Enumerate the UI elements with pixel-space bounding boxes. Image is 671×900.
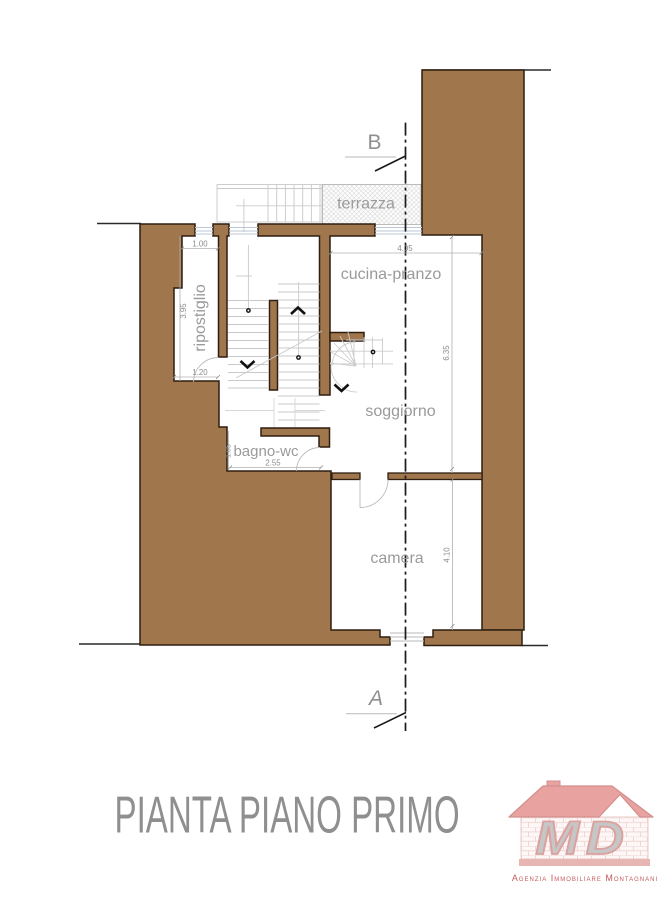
svg-text:MD: MD [535,812,630,865]
svg-text:B: B [367,131,381,154]
svg-text:6.35: 6.35 [442,345,451,361]
svg-text:Agenzia Immobiliare Montagnani: Agenzia Immobiliare Montagnani [512,873,658,883]
svg-text:1.00: 1.00 [192,240,208,249]
svg-text:1.20: 1.20 [192,368,208,377]
svg-text:ripostiglio: ripostiglio [192,284,209,352]
svg-text:cucina-pranzo: cucina-pranzo [341,266,442,283]
svg-text:2.55: 2.55 [265,459,281,468]
svg-text:3.95: 3.95 [179,303,188,319]
svg-text:PIANTA PIANO PRIMO: PIANTA PIANO PRIMO [115,787,460,844]
svg-text:camera: camera [370,550,423,567]
svg-text:1.05: 1.05 [226,444,233,458]
svg-text:4.10: 4.10 [443,547,452,563]
svg-text:4.05: 4.05 [397,244,413,253]
svg-text:terrazza: terrazza [337,196,395,213]
svg-text:soggiorno: soggiorno [365,403,435,420]
svg-text:bagno-wc: bagno-wc [233,443,299,460]
svg-text:A: A [367,687,383,710]
